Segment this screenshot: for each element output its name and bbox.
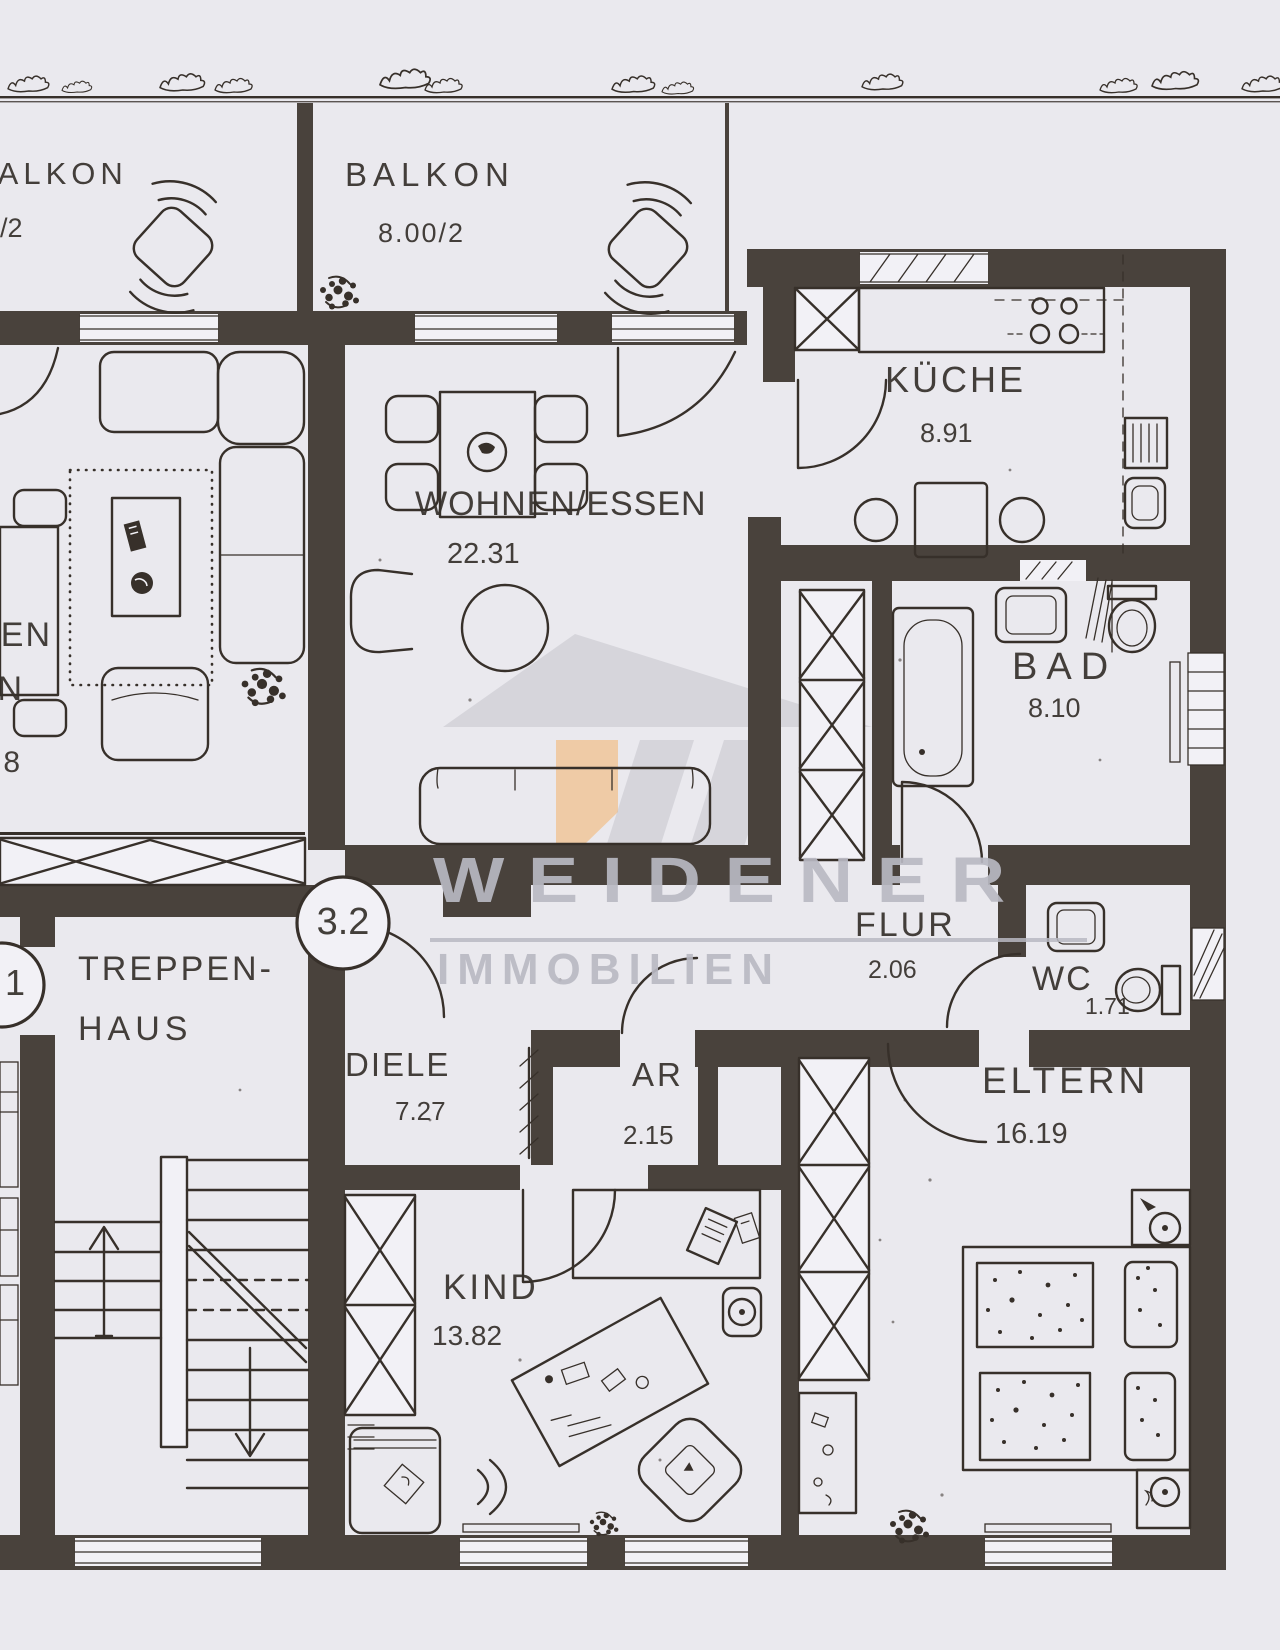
neighbor-area-fragment: 8 [0,748,20,778]
window-left-living [80,314,218,342]
neighbor-flat-left-sliver [0,1062,18,1385]
notebook-icon [687,1208,737,1264]
room-area-wc: 1.71 [1085,995,1130,1018]
site-edge-line [0,69,1280,102]
window-treppenhaus [75,1538,261,1566]
room-area-balkon: 8.00/2 [378,220,465,247]
floor-plan-page: BALKON /2 BALKON 8.00/2 KÜCHE 8.91 WOHNE… [0,0,1280,1650]
pillow-icon [1125,1262,1177,1347]
radiator-icon [1170,653,1224,765]
room-area-kueche: 8.91 [920,420,973,447]
room-area-ar: 2.15 [623,1122,674,1148]
kid-chair-icon [631,1411,750,1530]
plant-icon [320,277,359,310]
door-arc-wohnen-balcony [618,348,735,436]
window-kind-2 [625,1538,748,1566]
room-label-eltern: ELTERN [982,1062,1149,1099]
worktop-dashed-line [990,255,1123,557]
plant-icon [242,669,286,706]
chair-icon [535,396,587,442]
stair-arrow-down [236,1348,264,1456]
window-eltern [985,1524,1112,1566]
room-area-eltern: 16.19 [995,1120,1068,1149]
pillow-icon [1125,1373,1175,1460]
room-area-balkon-left: /2 [0,215,23,242]
neighbor-label-fragment-1: EN [0,618,52,652]
window-wohnen [415,314,557,342]
desk-stool-icon [723,1288,761,1336]
chair-icon [386,396,438,442]
stove-icon [1008,299,1104,344]
room-label-wohnen: WOHNEN/ESSEN [415,487,707,521]
balcony-chair-icon [603,182,692,313]
chair-icon [1000,498,1044,542]
balcony-chair-icon [128,181,217,312]
desk-item-icon [734,1213,759,1243]
room-label-balkon-left: BALKON [0,158,128,189]
kid-bed-icon [350,1428,440,1533]
window-bad-high [1020,560,1086,581]
sideboard-icon [0,832,305,885]
hall-cabinet-upper [800,590,864,860]
room-label-diele: DIELE [345,1048,450,1081]
nightstand-icon [1132,1190,1190,1245]
door-arc-left-flat-balcony [0,348,58,414]
armchair-icon [102,668,208,760]
room-label-ar: AR [632,1058,684,1091]
stair-break-line [189,1232,306,1362]
sofa-corner-icon [218,352,304,444]
mattress-dots [986,1266,1162,1450]
fridge-icon [1125,418,1167,468]
neighbor-label-fragment-2: N [0,672,22,706]
watermark-line2: IMMOBILIEN [437,948,781,992]
room-area-bad: 8.10 [1028,695,1081,722]
hall-cabinet-lower [799,1058,869,1380]
bathtub-icon [893,608,973,786]
watermark-line1: WEIDENER [433,848,1029,912]
radiator-icon [1192,928,1224,1000]
unit-number-current: 3.2 [303,903,383,941]
room-label-treppenhaus-2: HAUS [78,1012,192,1046]
room-area-flur: 2.06 [868,958,917,983]
round-table-icon [462,585,548,671]
chair-icon [14,490,66,526]
nightstand-icon [1137,1470,1190,1528]
room-area-diele: 7.27 [395,1098,446,1124]
watermark-underline [430,938,1087,942]
balcony-door-threshold [612,314,734,342]
room-label-bad: BAD [1012,648,1117,686]
wc-sink-icon [1048,903,1104,951]
toilet-icon [1108,586,1156,652]
floor-plan-drawing [0,0,1280,1650]
room-area-wohnen: 22.31 [447,540,520,569]
unit-number-adjacent: 1 [0,965,40,1001]
bathroom-sink-icon [996,588,1066,642]
play-rug-icon [512,1298,708,1466]
dresser-icon [799,1393,856,1513]
toy-arcs-icon [478,1460,506,1514]
wardrobe-icon [345,1195,415,1415]
window-kueche [860,252,988,284]
room-label-balkon: BALKON [345,158,515,191]
sofa-icon [100,352,218,432]
kind-furniture [345,1190,761,1536]
sink-icon [1125,478,1165,528]
toy-icon [590,1512,619,1536]
cabinet-icon [795,288,859,350]
chair-icon [855,499,897,541]
coffee-table-icon [112,498,180,616]
kueche-fixtures [795,255,1167,557]
door-arc-kueche [798,380,886,468]
room-label-kueche: KÜCHE [885,362,1026,398]
room-area-kind: 13.82 [432,1322,502,1350]
window-kind-1 [460,1524,587,1566]
room-label-kind: KIND [443,1270,539,1305]
door-arc-wc [947,954,1020,1027]
room-label-treppenhaus-1: TREPPEN- [78,952,274,986]
chair-icon [351,570,412,652]
double-bed-icon [963,1247,1190,1470]
room-label-wc: WC [1032,962,1093,996]
staircase [55,1157,308,1488]
